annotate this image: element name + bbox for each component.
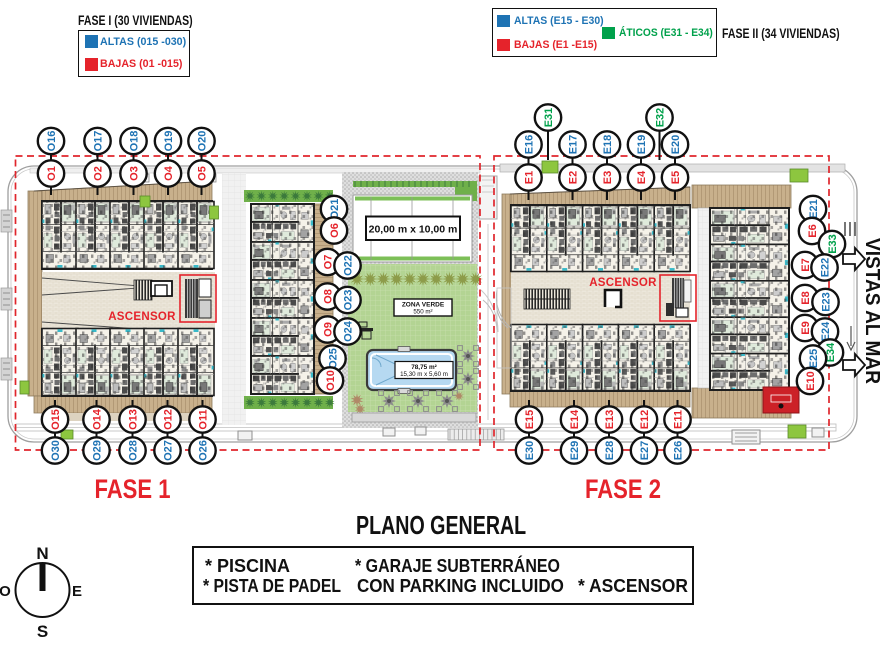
svg-text:O13: O13 [128,409,140,430]
svg-text:E2: E2 [568,171,580,184]
svg-text:O24: O24 [343,320,355,342]
svg-text:E12: E12 [639,410,651,430]
svg-text:FASE 2: FASE 2 [585,474,661,504]
svg-text:O12: O12 [163,409,175,430]
svg-text:E15: E15 [524,410,536,430]
svg-text:E21: E21 [808,199,820,219]
svg-text:O29: O29 [92,440,104,461]
svg-text:E10: E10 [805,371,817,391]
svg-text:O28: O28 [128,440,140,461]
svg-text:O8: O8 [323,289,335,304]
svg-text:15,30 m x 5,60 m: 15,30 m x 5,60 m [400,371,448,378]
svg-text:N: N [36,544,48,563]
svg-text:O6: O6 [329,223,341,238]
svg-text:O7: O7 [323,255,335,270]
svg-text:O19: O19 [163,131,175,152]
svg-text:ZONA VERDE: ZONA VERDE [402,302,445,309]
svg-text:O11: O11 [198,409,210,429]
svg-text:E1: E1 [524,171,536,184]
svg-text:E16: E16 [524,135,536,155]
svg-text:S: S [37,622,48,640]
svg-text:550 m²: 550 m² [413,309,432,316]
svg-text:E31: E31 [543,108,555,128]
svg-text:E23: E23 [821,292,833,312]
svg-text:E14: E14 [569,409,581,429]
svg-text:O2: O2 [93,166,105,181]
svg-text:ASCENSOR: ASCENSOR [589,277,657,289]
svg-text:E5: E5 [670,171,682,184]
svg-text:O17: O17 [93,131,105,152]
svg-text:E18: E18 [602,135,614,155]
svg-text:E11: E11 [673,410,685,429]
svg-text:O25: O25 [328,348,340,369]
svg-text:O14: O14 [92,408,104,430]
svg-text:ASCENSOR: ASCENSOR [108,311,176,323]
svg-text:O26: O26 [198,440,210,461]
svg-text:FASE 1: FASE 1 [95,474,171,504]
svg-text:O18: O18 [129,131,141,152]
svg-text:O22: O22 [343,255,355,276]
svg-text:E6: E6 [807,224,819,237]
svg-text:E25: E25 [808,349,820,369]
svg-text:E30: E30 [524,441,536,461]
svg-text:E20: E20 [670,135,682,155]
svg-text:20,00 m x 10,00 m: 20,00 m x 10,00 m [369,224,458,236]
svg-text:O27: O27 [163,440,175,461]
svg-text:E19: E19 [636,135,648,155]
svg-text:O5: O5 [197,166,209,181]
svg-text:E26: E26 [673,441,685,461]
svg-text:E3: E3 [602,171,614,184]
svg-text:78,75 m²: 78,75 m² [411,364,437,371]
svg-text:O3: O3 [129,166,141,181]
svg-text:E32: E32 [655,108,667,128]
svg-text:E9: E9 [800,321,812,334]
svg-text:O15: O15 [50,409,62,430]
svg-text:O23: O23 [343,290,355,311]
svg-text:E29: E29 [569,441,581,461]
svg-text:O20: O20 [197,131,209,152]
svg-text:O4: O4 [163,165,175,181]
svg-text:O30: O30 [50,440,62,461]
svg-text:E33: E33 [827,234,839,254]
svg-text:E17: E17 [568,135,580,155]
svg-text:E13: E13 [604,410,616,430]
svg-text:O16: O16 [46,131,58,152]
svg-text:E22: E22 [820,258,832,278]
svg-text:O1: O1 [46,166,58,181]
svg-text:E28: E28 [604,441,616,461]
svg-text:O9: O9 [323,322,335,337]
svg-text:E8: E8 [800,291,812,304]
svg-text:E4: E4 [636,170,648,184]
svg-text:O: O [0,583,11,600]
svg-text:O10: O10 [325,370,337,391]
svg-text:E: E [72,583,82,600]
svg-text:E27: E27 [639,441,651,461]
